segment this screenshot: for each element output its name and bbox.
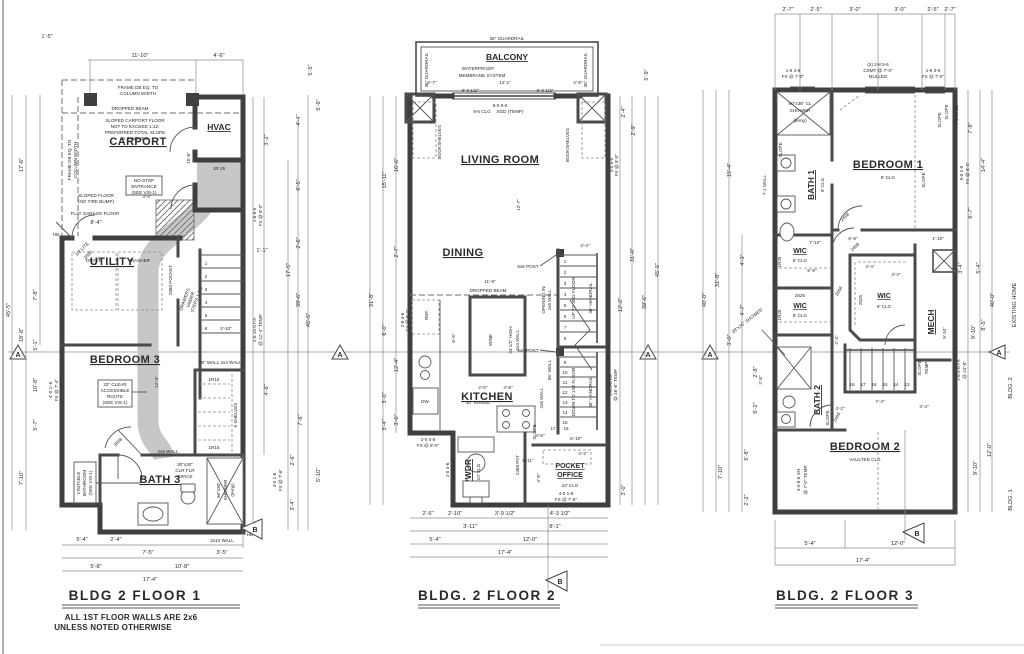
- svg-text:WATERPROOF: WATERPROOF: [462, 66, 495, 71]
- floor1-dimensions: 11'-10" 4'-6" 1'-5" 17'-6" 45'-5" 18'-8"…: [6, 34, 322, 583]
- svg-text:2'-8": 2'-8": [573, 80, 583, 85]
- svg-text:3-0 5-6 SH: 3-0 5-6 SH: [796, 469, 801, 491]
- svg-text:4-0 1-6: 4-0 1-6: [559, 491, 574, 496]
- svg-text:1-6 5-0 FX: 1-6 5-0 FX: [956, 359, 961, 381]
- svg-text:SPACE: SPACE: [177, 474, 192, 479]
- svg-text:UP TO 3RD FLOOR: UP TO 3RD FLOOR: [571, 277, 576, 319]
- svg-text:WASHER: WASHER: [130, 258, 151, 263]
- svg-text:4'-3 1/2": 4'-3 1/2": [550, 511, 570, 517]
- svg-text:HB: HB: [53, 232, 59, 237]
- svg-text:31'-8": 31'-8": [715, 273, 721, 287]
- svg-text:34 1/2" HIGH: 34 1/2" HIGH: [508, 326, 513, 353]
- svg-text:ACCESSIBLE: ACCESSIBLE: [101, 388, 130, 393]
- svg-text:4'-6": 4'-6": [213, 53, 224, 59]
- svg-text:3'-2": 3'-2": [264, 134, 270, 145]
- svg-text:7'-10": 7'-10": [718, 465, 724, 479]
- svg-text:10'-8": 10'-8": [175, 564, 189, 570]
- svg-text:17'-4": 17'-4": [143, 577, 157, 583]
- plan-floor-2: 36" GUARDRAIL BALCONY 36" GUARDRAIL 36" …: [369, 36, 661, 608]
- svg-text:A: A: [707, 352, 712, 359]
- svg-text:11'-8": 11'-8": [484, 279, 496, 284]
- svg-text:9' CLG: 9' CLG: [877, 304, 892, 309]
- room-label-balcony: BALCONY: [486, 52, 528, 62]
- floor1-note: ALL 1ST FLOOR WALLS ARE 2x6: [65, 613, 198, 622]
- svg-text:1R 25: 1R 25: [213, 166, 226, 171]
- floor1-note: UNLESS NOTED OTHERWISE: [54, 623, 172, 632]
- room-label-bedroom2: BEDROOM 2: [830, 441, 900, 453]
- svg-text:14'-4": 14'-4": [981, 158, 987, 172]
- svg-text:12'-0": 12'-0": [987, 443, 993, 457]
- svg-text:5'-9": 5'-9": [316, 99, 322, 110]
- svg-text:(2) 2-8 5-6: (2) 2-8 5-6: [867, 62, 889, 67]
- svg-text:SGD (TEMP): SGD (TEMP): [496, 109, 524, 114]
- svg-text:MEMBRANE SYSTEM: MEMBRANE SYSTEM: [459, 73, 506, 78]
- svg-text:9: 9: [564, 360, 567, 365]
- svg-text:2668: 2668: [834, 285, 844, 297]
- svg-text:3'-5": 3'-5": [216, 550, 227, 556]
- svg-text:@ 24'-8": @ 24'-8": [962, 361, 967, 379]
- bookshelf-right: [582, 102, 605, 158]
- svg-text:28"x36" SHOWER: 28"x36" SHOWER: [731, 307, 764, 335]
- svg-text:10'-8": 10'-8": [33, 378, 39, 392]
- svg-text:FX @ 7'-4": FX @ 7'-4": [54, 379, 59, 402]
- svg-text:DOWN TO 1ST FLOOR: DOWN TO 1ST FLOOR: [571, 367, 576, 416]
- svg-text:6x6 POST: 6x6 POST: [517, 348, 538, 353]
- balcony-guardrail: [416, 42, 598, 96]
- svg-text:7'-8": 7'-8": [33, 289, 39, 300]
- room-label-hvac: HVAC: [207, 122, 230, 132]
- svg-text:SLOPED CARPORT FLOOR: SLOPED CARPORT FLOOR: [105, 118, 165, 123]
- carport-column: [84, 93, 97, 106]
- svg-text:2'-4": 2'-4": [110, 537, 121, 543]
- svg-text:11'-10": 11'-10": [132, 53, 149, 59]
- svg-text:2-6 15-0 FX: 2-6 15-0 FX: [252, 318, 257, 342]
- svg-text:14: 14: [562, 410, 568, 415]
- svg-text:1'-10": 1'-10": [932, 236, 944, 241]
- svg-text:PREFERRED TOTAL SLOPE: PREFERRED TOTAL SLOPE: [105, 130, 165, 135]
- svg-text:3'-0": 3'-0": [621, 484, 627, 495]
- svg-text:7'-6": 7'-6": [298, 414, 304, 425]
- svg-text:TEMP: TEMP: [924, 362, 929, 375]
- svg-text:36" GUARDRAIL: 36" GUARDRAIL: [583, 52, 588, 87]
- svg-text:REF.: REF.: [424, 310, 429, 320]
- svg-text:4'-4": 4'-4": [580, 243, 590, 248]
- svg-text:5'-8": 5'-8": [90, 564, 101, 570]
- svg-text:45'-5": 45'-5": [655, 263, 661, 277]
- svg-text:5'-7": 5'-7": [33, 419, 39, 430]
- svg-text:3'-4": 3'-4": [958, 262, 964, 273]
- svg-text:2x8 WALL: 2x8 WALL: [157, 449, 178, 454]
- floor3-dims-top: 2'-7" 2'-5" 3'-0" 3'-0" 2'-5" 2'-7" 1-6 …: [775, 7, 956, 90]
- bedroom3-door: [105, 427, 142, 455]
- svg-text:17: 17: [550, 426, 556, 431]
- svg-text:8'-1": 8'-1": [549, 524, 560, 530]
- svg-text:5'-5": 5'-5": [308, 64, 314, 75]
- drawing-canvas: A A A A A 1 2 3 4 5 6 3'-10" 5 SHELVES 1…: [0, 0, 1024, 654]
- room-label-wic3: WIC: [877, 293, 891, 300]
- svg-text:2'-7": 2'-7": [427, 80, 437, 85]
- svg-text:@ 16'-6" TEMP: @ 16'-6" TEMP: [613, 369, 618, 401]
- svg-text:1-6 3-6: 1-6 3-6: [786, 68, 801, 73]
- svg-text:FX @ 7'-0": FX @ 7'-0": [922, 74, 945, 79]
- svg-text:B: B: [557, 579, 562, 586]
- floor1-title: BLDG 2 FLOOR 1: [69, 588, 202, 603]
- floor3-dims-right: 7'-8" 14'-4" 6'-7" 40'-0" 8'-5" 9'-10" 3…: [956, 90, 996, 512]
- svg-text:2'-6": 2'-6": [296, 237, 302, 248]
- svg-text:45'-5": 45'-5": [6, 303, 12, 317]
- svg-text:4'-4": 4'-4": [296, 114, 302, 125]
- svg-text:36" HANDRAIL: 36" HANDRAIL: [588, 376, 593, 408]
- svg-text:60"x36" CL: 60"x36" CL: [789, 101, 812, 106]
- svg-text:(temp): (temp): [793, 118, 807, 123]
- svg-text:4'-4": 4'-4": [865, 264, 875, 269]
- svg-text:VAULTED CLG: VAULTED CLG: [849, 457, 881, 462]
- svg-text:NO-STEP: NO-STEP: [134, 178, 154, 183]
- svg-text:1R15: 1R15: [209, 445, 220, 450]
- svg-text:17: 17: [860, 382, 866, 387]
- svg-text:2'-8": 2'-8": [758, 375, 763, 385]
- svg-text:5-0 2-0: 5-0 2-0: [959, 165, 964, 180]
- svg-text:11: 11: [563, 380, 568, 385]
- svg-text:6'-6": 6'-6": [451, 333, 456, 343]
- svg-text:2-0 4-6: 2-0 4-6: [421, 437, 436, 442]
- svg-text:8: 8: [564, 336, 567, 341]
- svg-text:SLOPE: SLOPE: [944, 104, 949, 119]
- svg-text:15'-4": 15'-4": [727, 163, 733, 177]
- svg-text:DROPPED BEAM: DROPPED BEAM: [111, 106, 148, 111]
- svg-text:9' CLG: 9' CLG: [881, 175, 896, 180]
- svg-text:2880 POCKET: 2880 POCKET: [168, 265, 173, 296]
- svg-text:SLOPE: SLOPE: [917, 360, 922, 375]
- svg-text:1: 1: [205, 261, 208, 266]
- svg-text:2'-4": 2'-4": [834, 335, 839, 345]
- svg-text:60"x30": 60"x30": [216, 482, 221, 498]
- svg-text:3'-0": 3'-0": [894, 7, 905, 13]
- svg-text:13: 13: [562, 400, 568, 405]
- floor2-dims-right: 5'-9" 2'-4" 2'-9" 12'-2" 31'-0" 39'-6" 4…: [608, 69, 661, 505]
- svg-text:4'-3": 4'-3": [740, 254, 746, 265]
- svg-text:6'-2": 6'-2": [753, 402, 759, 413]
- svg-text:7'-4": 7'-4": [875, 399, 885, 404]
- section-marker-b-f3: B: [903, 430, 924, 543]
- svg-text:2'-9": 2'-9": [631, 124, 637, 135]
- plan-floor-1: 1 2 3 4 5 6 3'-10" 5 SHELVES 1R15 1R15 6…: [6, 34, 322, 632]
- svg-text:8'-4": 8'-4": [90, 220, 101, 226]
- svg-text:4: 4: [564, 292, 567, 297]
- svg-text:9'-10": 9'-10": [971, 325, 977, 339]
- svg-text:2x6 WALL: 2x6 WALL: [539, 387, 544, 408]
- svg-text:12'-4": 12'-4": [154, 376, 159, 388]
- svg-text:3'-0": 3'-0": [849, 7, 860, 13]
- svg-text:68" WALL: 68" WALL: [199, 360, 220, 365]
- svg-text:12'-2": 12'-2": [618, 298, 624, 312]
- svg-text:4'-2": 4'-2": [578, 451, 588, 456]
- svg-text:2868: 2868: [113, 436, 124, 447]
- svg-text:31'-8": 31'-8": [369, 293, 375, 307]
- svg-text:CSMT @ 7'-0": CSMT @ 7'-0": [863, 68, 893, 73]
- svg-text:12'-1": 12'-1": [499, 80, 511, 85]
- svg-text:7'-10": 7'-10": [19, 471, 25, 485]
- svg-text:B: B: [252, 527, 257, 534]
- svg-text:3'-4": 3'-4": [919, 404, 929, 409]
- svg-text:CLR FLR: CLR FLR: [175, 468, 195, 473]
- svg-text:4'-8": 4'-8": [503, 385, 513, 390]
- svg-text:2'-7": 2'-7": [394, 246, 400, 257]
- svg-text:6'-5": 6'-5": [296, 179, 302, 190]
- svg-text:39'-6": 39'-6": [642, 295, 648, 309]
- svg-text:COLUMN WIDTH: COLUMN WIDTH: [73, 142, 78, 178]
- svg-text:16: 16: [871, 382, 877, 387]
- svg-text:6'-8": 6'-8": [848, 236, 858, 241]
- svg-text:SLOPE: SLOPE: [825, 410, 830, 425]
- svg-text:COLUMN WIDTH: COLUMN WIDTH: [120, 91, 156, 96]
- svg-text:13: 13: [904, 382, 910, 387]
- svg-text:FX @ 8'-0": FX @ 8'-0": [417, 443, 440, 448]
- svg-text:SH @ 8'-0": SH @ 8'-0": [451, 458, 456, 481]
- svg-text:3'-0": 3'-0": [727, 334, 733, 345]
- svg-text:5'-10": 5'-10": [570, 436, 582, 441]
- svg-text:45'-5": 45'-5": [306, 313, 312, 327]
- svg-text:5: 5: [205, 313, 208, 318]
- room-label-wic1: WIC: [793, 248, 807, 255]
- svg-text:12: 12: [562, 390, 568, 395]
- floor-plan-sheet: A A A A A 1 2 3 4 5 6 3'-10" 5 SHELVES 1…: [0, 0, 1024, 654]
- svg-text:4'-8": 4'-8": [536, 473, 541, 483]
- svg-text:30"x30": 30"x30": [177, 462, 193, 467]
- svg-text:A: A: [337, 352, 342, 359]
- svg-text:2825: 2825: [858, 294, 863, 305]
- svg-text:8' CLG: 8' CLG: [793, 313, 808, 318]
- svg-text:1'-1": 1'-1": [256, 248, 267, 254]
- svg-text:(SEE VIS-1): (SEE VIS-1): [131, 190, 156, 195]
- svg-text:3'-9 1/2": 3'-9 1/2": [495, 511, 515, 517]
- svg-text:B: B: [914, 531, 919, 538]
- svg-text:@ 7'-0" TEMP: @ 7'-0" TEMP: [803, 465, 808, 494]
- label-existing-home: EXISTING HOME: [1012, 283, 1018, 328]
- svg-text:6'-0 1/2": 6'-0 1/2": [537, 88, 554, 93]
- svg-text:5: 5: [564, 303, 567, 308]
- svg-text:WINE: WINE: [488, 334, 493, 346]
- svg-text:BOOKSHELVES: BOOKSHELVES: [565, 128, 570, 162]
- svg-text:7-1 WALL: 7-1 WALL: [954, 104, 959, 125]
- svg-text:5'-4": 5'-4": [976, 262, 982, 273]
- svg-text:5'-4": 5'-4": [76, 537, 87, 543]
- svg-text:2468 PKT: 2468 PKT: [515, 455, 520, 476]
- kitchen-fixtures: [412, 297, 535, 433]
- svg-text:A: A: [15, 352, 20, 359]
- svg-text:17'-4": 17'-4": [498, 550, 512, 556]
- svg-text:4'-4": 4'-4": [891, 272, 901, 277]
- svg-text:7'-8": 7'-8": [968, 122, 974, 133]
- svg-text:FRAME DB EQ. TO: FRAME DB EQ. TO: [67, 139, 72, 180]
- svg-text:DW: DW: [421, 399, 429, 404]
- label-bldg-1: BLDG. 1: [1008, 489, 1014, 510]
- svg-text:3'-11": 3'-11": [463, 524, 477, 530]
- svg-text:12'-4": 12'-4": [394, 358, 400, 372]
- svg-text:5'-8": 5'-8": [744, 449, 750, 460]
- svg-text:18: 18: [849, 382, 855, 387]
- svg-text:FX @ 8'-0": FX @ 8'-0": [614, 154, 619, 177]
- room-label-bath3: BATH 3: [139, 474, 180, 486]
- svg-text:4: 4: [205, 300, 208, 305]
- svg-text:2'-6": 2'-6": [290, 454, 296, 465]
- svg-text:4'-7": 4'-7": [740, 304, 746, 315]
- svg-text:2'-5": 2'-5": [810, 7, 821, 13]
- svg-text:7: 7: [564, 325, 567, 330]
- svg-text:FX @ 8'-0": FX @ 8'-0": [965, 162, 970, 185]
- svg-text:5'-10": 5'-10": [316, 468, 322, 482]
- svg-text:4'-0 1'-6: 4'-0 1'-6: [48, 381, 53, 398]
- svg-text:15: 15: [882, 382, 888, 387]
- svg-text:4'-2": 4'-2": [835, 406, 845, 411]
- svg-text:SLOPED FLOOR: SLOPED FLOOR: [78, 193, 114, 198]
- svg-text:@ 12'-4" TEMP: @ 12'-4" TEMP: [258, 314, 263, 346]
- svg-text:BATHROOM: BATHROOM: [82, 470, 87, 496]
- svg-text:3'-0": 3'-0": [382, 392, 388, 403]
- svg-text:5'-8": 5'-8": [807, 268, 817, 273]
- svg-text:(temp): (temp): [230, 483, 235, 497]
- svg-text:2468: 2468: [850, 241, 861, 252]
- floor1-stairs: 1 2 3 4 5 6 3'-10": [200, 255, 243, 333]
- svg-text:3: 3: [205, 287, 208, 292]
- svg-text:2x6 WALL: 2x6 WALL: [547, 289, 552, 310]
- room-label-living: LIVING ROOM: [461, 154, 539, 166]
- svg-text:OPENING IN: OPENING IN: [541, 286, 546, 313]
- svg-text:FX @ 7'-6": FX @ 7'-6": [278, 469, 283, 492]
- svg-text:7'-10": 7'-10": [809, 240, 821, 245]
- svg-text:4-0 1-6: 4-0 1-6: [272, 472, 277, 487]
- svg-text:FX @ 7'-0": FX @ 7'-0": [782, 74, 805, 79]
- svg-text:2-0 4-6: 2-0 4-6: [445, 462, 450, 477]
- room-label-bedroom1: BEDROOM 1: [853, 159, 923, 171]
- svg-text:7-1 WALL: 7-1 WALL: [762, 174, 767, 195]
- svg-text:30" RANGE: 30" RANGE: [466, 400, 490, 405]
- svg-text:5'-4": 5'-4": [429, 537, 440, 543]
- floor2-dims-bottom: 2'-6" 2'-10" 3'-9 1/2" 4'-3 1/2" 3'-11" …: [410, 511, 608, 557]
- svg-text:2'-6": 2'-6": [422, 511, 433, 517]
- svg-text:1'-5": 1'-5": [41, 34, 52, 40]
- svg-text:8-0 8-0: 8-0 8-0: [493, 103, 508, 108]
- svg-text:DROPPED BEAM: DROPPED BEAM: [469, 288, 506, 293]
- svg-text:1R25: 1R25: [777, 256, 782, 267]
- svg-text:12'-7": 12'-7": [516, 199, 521, 211]
- svg-text:8'-5": 8'-5": [981, 319, 987, 330]
- svg-text:15: 15: [562, 420, 568, 425]
- svg-text:5'-4": 5'-4": [804, 541, 815, 547]
- svg-text:1R25: 1R25: [777, 309, 782, 320]
- svg-text:36" WALL: 36" WALL: [547, 359, 552, 380]
- svg-text:15'-11": 15'-11": [382, 172, 388, 189]
- svg-text:3'-4": 3'-4": [382, 419, 388, 430]
- bath1-fixtures: [777, 92, 830, 241]
- svg-text:A: A: [996, 350, 1001, 357]
- svg-text:VISITABLE: VISITABLE: [76, 472, 81, 495]
- svg-text:4'-5": 4'-5": [535, 433, 545, 438]
- svg-text:12'-0": 12'-0": [523, 537, 537, 543]
- svg-text:15'-6": 15'-6": [186, 152, 191, 164]
- svg-text:32" CLEAR: 32" CLEAR: [103, 382, 127, 387]
- svg-text:18'-8": 18'-8": [19, 328, 25, 342]
- plan-floor-3: 60"x36" CL SHOWER (temp) BATH 1 9' CLG S…: [702, 7, 1018, 608]
- svg-text:SHOWER: SHOWER: [223, 479, 228, 500]
- svg-text:17'-4": 17'-4": [856, 558, 870, 564]
- svg-text:9'-10": 9'-10": [942, 327, 947, 339]
- svg-text:(NO TIRE BUMP): (NO TIRE BUMP): [78, 199, 115, 204]
- svg-text:10: 10: [562, 370, 568, 375]
- svg-text:SHOWER: SHOWER: [790, 108, 811, 113]
- floor2-stairs: 1 2 3 4 5 6 7 8 9 10 11 12 13 14 15 17 1…: [550, 250, 605, 433]
- svg-text:40'-0": 40'-0": [990, 293, 996, 307]
- svg-text:17'-5": 17'-5": [286, 263, 292, 277]
- svg-text:10' CLG: 10' CLG: [562, 483, 579, 488]
- hvac-door: [170, 127, 195, 152]
- svg-text:SLOPE: SLOPE: [921, 172, 926, 187]
- svg-text:IS 4 INCHES.: IS 4 INCHES.: [121, 136, 149, 141]
- svg-text:NOT TO EXCEED 1:12.: NOT TO EXCEED 1:12.: [111, 124, 160, 129]
- svg-text:2x4 WALL: 2x4 WALL: [515, 329, 520, 350]
- svg-text:(SEE VIS-1): (SEE VIS-1): [102, 400, 127, 405]
- floor3-title: BLDG. 2 FLOOR 3: [776, 588, 914, 603]
- svg-text:FX @ 7'-6": FX @ 7'-6": [555, 497, 578, 502]
- svg-text:FLAT GARAGE FLOOR: FLAT GARAGE FLOOR: [71, 211, 121, 216]
- svg-text:36" GUARDRAIL: 36" GUARDRAIL: [490, 36, 525, 41]
- svg-text:6: 6: [564, 314, 567, 319]
- svg-text:BOOKSHELVES: BOOKSHELVES: [437, 125, 442, 159]
- svg-text:5'-9": 5'-9": [644, 69, 650, 80]
- svg-text:31'-0": 31'-0": [630, 248, 636, 262]
- svg-text:2x10 WALL: 2x10 WALL: [210, 538, 234, 543]
- svg-text:5 SHELVES: 5 SHELVES: [233, 403, 238, 428]
- svg-text:FX @ 8'-0": FX @ 8'-0": [258, 204, 263, 227]
- svg-text:DRYER: DRYER: [86, 258, 103, 263]
- svg-text:1: 1: [564, 259, 567, 264]
- svg-text:6'-0 1/2": 6'-0 1/2": [462, 88, 479, 93]
- room-label-pocket-office: OFFICE: [557, 472, 583, 479]
- svg-text:1R15: 1R15: [209, 377, 220, 382]
- svg-text:9' CLG: 9' CLG: [820, 177, 825, 192]
- svg-text:2'-7": 2'-7": [782, 7, 793, 13]
- svg-text:3: 3: [564, 281, 567, 286]
- svg-text:9'-10": 9'-10": [973, 461, 979, 475]
- room-label-bath1: BATH 1: [806, 170, 816, 200]
- svg-text:2'-2": 2'-2": [744, 494, 750, 505]
- floor2-title: BLDG. 2 FLOOR 2: [418, 588, 556, 603]
- svg-text:36" HANDRAIL: 36" HANDRAIL: [588, 282, 593, 314]
- room-label-wic2: WIC: [793, 303, 807, 310]
- label-bldg-2: BLDG. 2: [1008, 377, 1014, 398]
- svg-text:1-6 3-6: 1-6 3-6: [926, 68, 941, 73]
- svg-text:12'-0": 12'-0": [891, 541, 905, 547]
- svg-text:3'-10": 3'-10": [220, 326, 232, 331]
- svg-text:7'-5": 7'-5": [142, 550, 153, 556]
- floor3-dims-bottom: 5'-4" 12'-0" 17'-4": [775, 520, 955, 565]
- svg-text:1-6 6-0: 1-6 6-0: [252, 207, 257, 222]
- svg-text:16: 16: [563, 426, 569, 431]
- svg-text:2'-7": 2'-7": [944, 7, 955, 13]
- entry-steps-hatch: [156, 200, 194, 240]
- svg-text:2'-0": 2'-0": [478, 385, 488, 390]
- svg-text:ROUTE: ROUTE: [107, 394, 123, 399]
- svg-text:4'-6": 4'-6": [264, 384, 270, 395]
- svg-text:FX @ 8'-0": FX @ 8'-0": [405, 309, 410, 332]
- svg-text:2468: 2468: [840, 211, 851, 222]
- floor3-stairs: 18 17 16 15 14 13: [846, 348, 914, 390]
- svg-text:3'-4": 3'-4": [290, 499, 296, 510]
- svg-text:MULLED: MULLED: [869, 74, 888, 79]
- svg-text:2: 2: [205, 274, 208, 279]
- room-label-bedroom3: BEDROOM 3: [90, 354, 160, 366]
- bath2-fixtures: [777, 347, 811, 427]
